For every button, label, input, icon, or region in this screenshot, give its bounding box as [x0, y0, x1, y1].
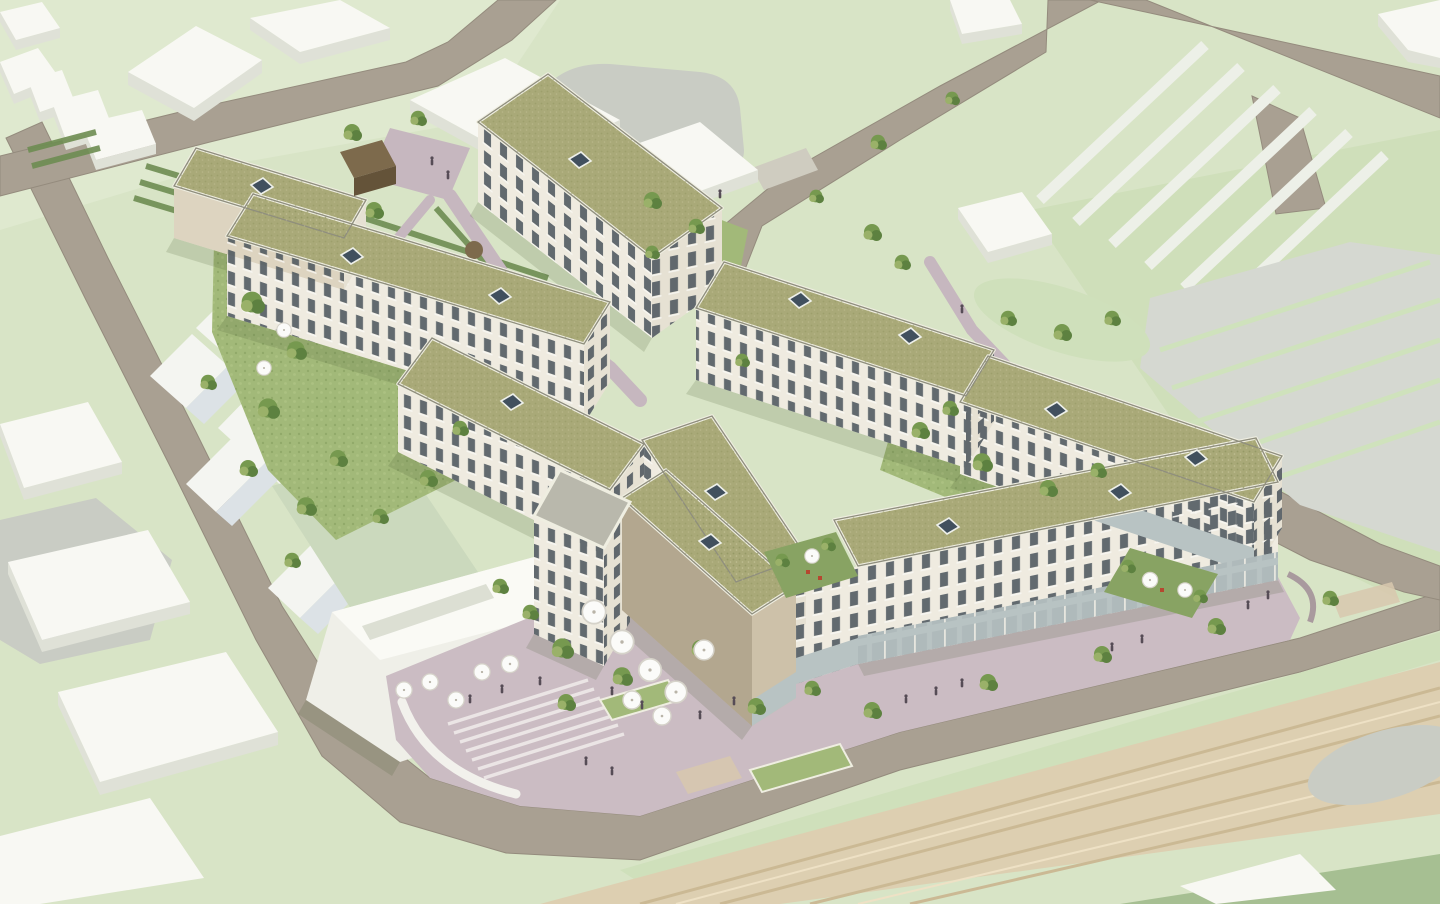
rendering-stage [0, 0, 1440, 904]
aerial-rendering [0, 0, 1440, 904]
round-kiosk [465, 241, 483, 259]
